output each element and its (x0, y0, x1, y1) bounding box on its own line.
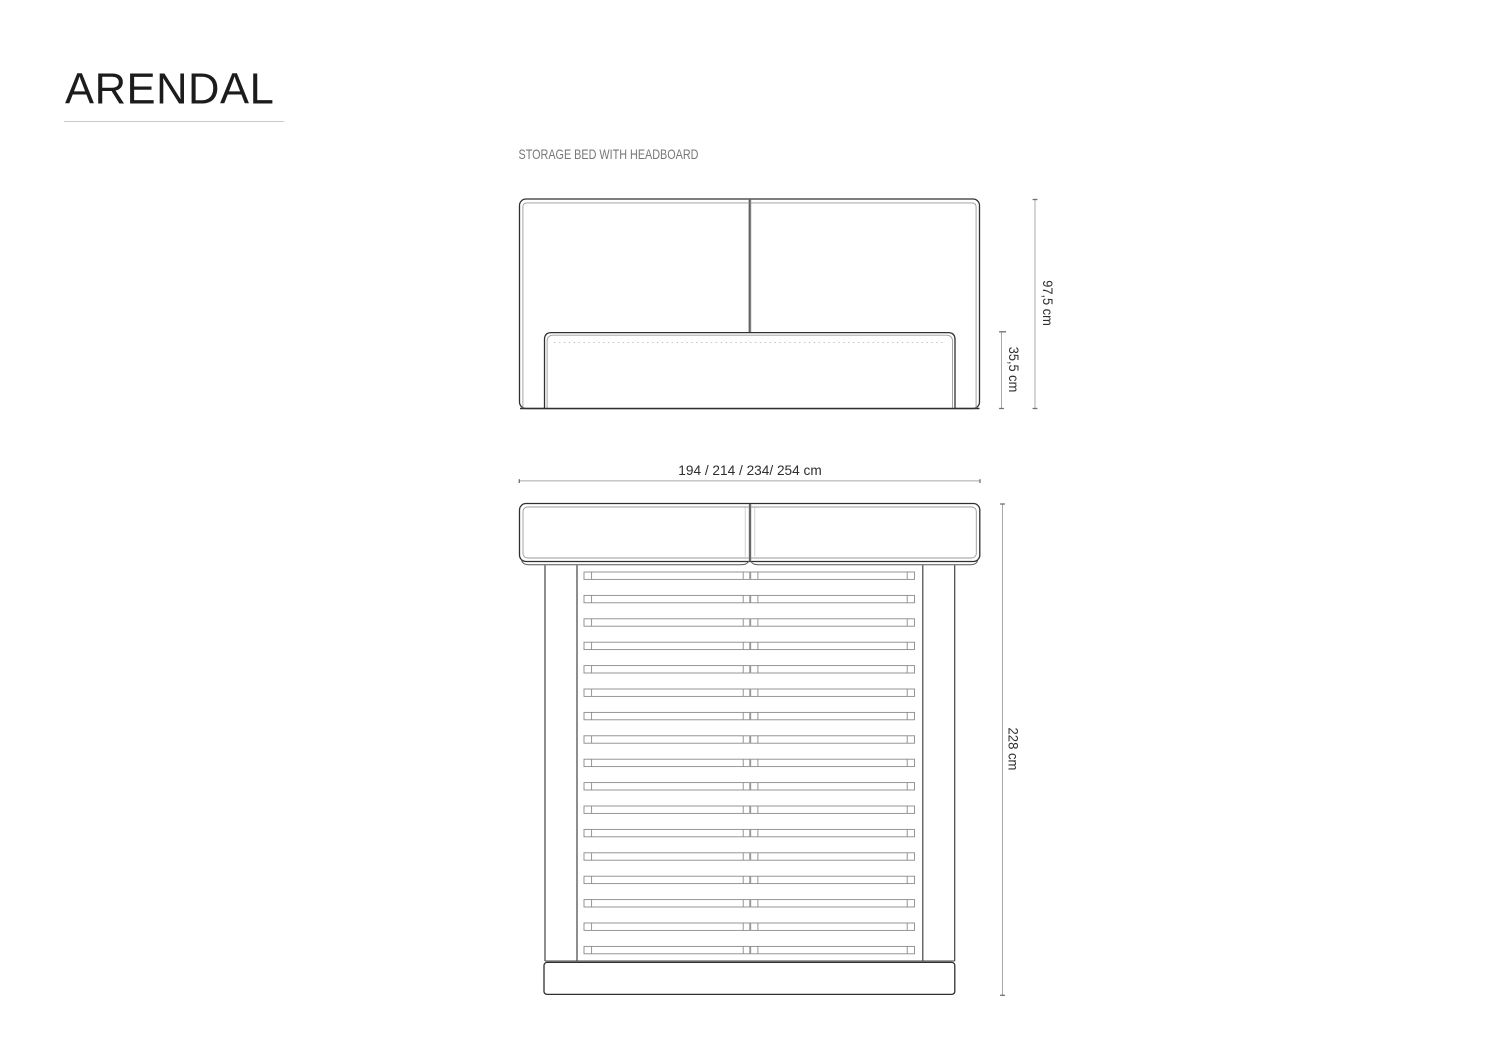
svg-text:35,5 cm: 35,5 cm (1006, 347, 1021, 393)
svg-text:228 cm: 228 cm (1006, 728, 1021, 771)
svg-text:STORAGE BED WITH HEADBOARD: STORAGE BED WITH HEADBOARD (519, 147, 699, 162)
svg-text:ARENDAL: ARENDAL (65, 66, 274, 114)
svg-text:97,5 cm: 97,5 cm (1040, 280, 1055, 326)
svg-text:194 / 214 / 234/ 254 cm: 194 / 214 / 234/ 254 cm (678, 463, 822, 479)
